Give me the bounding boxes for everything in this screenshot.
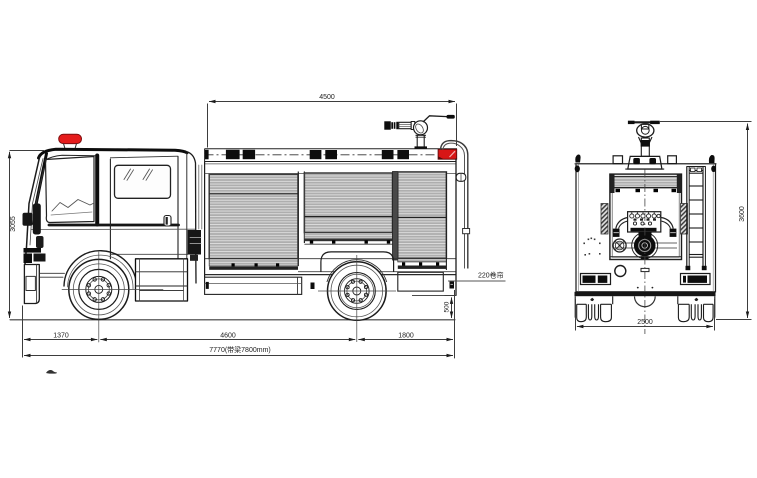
svg-text:2500: 2500 bbox=[637, 319, 653, 326]
svg-text:7770(带梁7800mm): 7770(带梁7800mm) bbox=[209, 345, 270, 354]
svg-text:3055: 3055 bbox=[10, 216, 17, 232]
svg-text:500: 500 bbox=[443, 301, 450, 312]
svg-text:4500: 4500 bbox=[319, 94, 335, 101]
svg-text:3600: 3600 bbox=[739, 206, 746, 222]
svg-text:4600: 4600 bbox=[220, 332, 236, 339]
svg-text:1800: 1800 bbox=[398, 332, 414, 339]
svg-text:1370: 1370 bbox=[53, 332, 69, 339]
svg-text:220卷帘: 220卷帘 bbox=[478, 271, 504, 280]
